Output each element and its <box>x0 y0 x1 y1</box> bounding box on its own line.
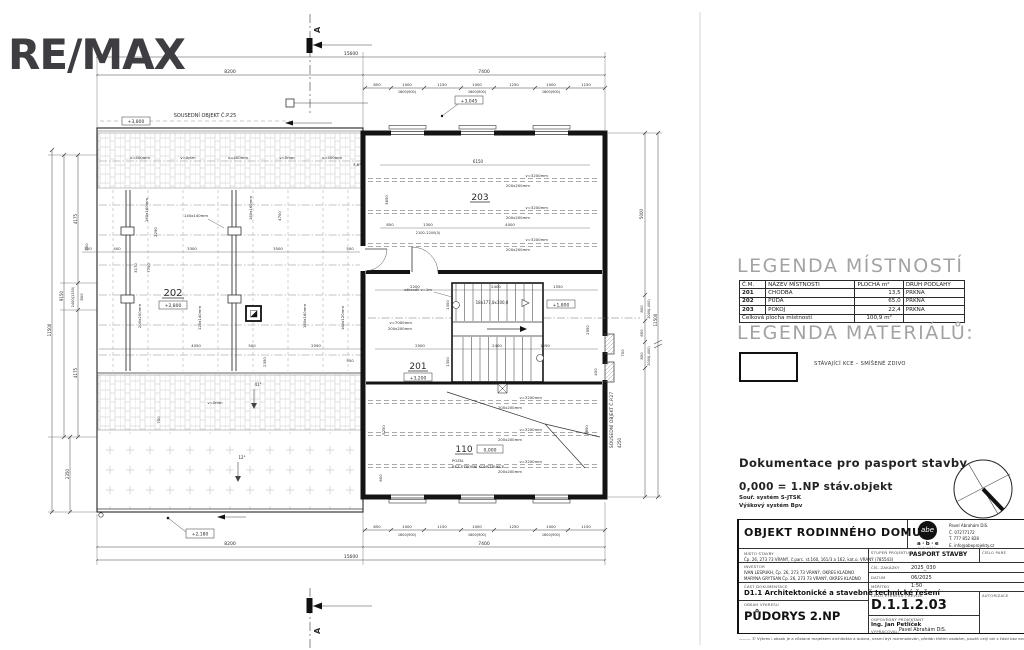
svg-text:2400: 2400 <box>491 284 501 289</box>
svg-text:v=7000mm: v=7000mm <box>390 320 413 325</box>
svg-text:1600(900): 1600(900) <box>542 533 561 537</box>
section-label: A <box>313 26 322 33</box>
misto-stavby-value: Čp. 26, 273 73 VRANÝ, č.parc. st.160, 16… <box>744 557 893 562</box>
neighbor-top-label: SOUSEDNÍ OBJEKT Č.P.25 <box>174 112 237 119</box>
svg-text:200x200mm: 200x200mm <box>498 469 522 474</box>
svg-text:3,8°: 3,8° <box>353 162 361 167</box>
svg-text:1600(900): 1600(900) <box>468 533 487 537</box>
zakazka-value: 2025_030 <box>911 565 936 571</box>
vypracoval-value: Pavel Abrahám DiS. <box>899 628 946 633</box>
svg-text:v=3200mm: v=3200mm <box>526 205 549 210</box>
svg-text:v=3200mm: v=3200mm <box>520 395 543 400</box>
svg-text:160x160mm: 160x160mm <box>302 304 307 328</box>
svg-text:700: 700 <box>620 349 625 357</box>
svg-text:41°: 41° <box>254 382 261 387</box>
odpovedny-value: Ing. Jan Petlíček <box>871 622 921 628</box>
svg-text:600: 600 <box>378 474 383 482</box>
svg-text:1600(900): 1600(900) <box>398 533 417 537</box>
svg-text:v=400mm: v=400mm <box>130 155 150 160</box>
svg-text:+3,800: +3,800 <box>128 119 145 125</box>
svg-text:160x120mm: 160x120mm <box>340 306 345 330</box>
svg-text:1300: 1300 <box>445 300 450 310</box>
svg-text:2350: 2350 <box>262 357 267 367</box>
dim-left-labels: 4175 800 1400(1150) 4175 9150 2350 11500… <box>47 213 89 479</box>
svg-text:200x200mm: 200x200mm <box>506 183 530 188</box>
svg-text:1150: 1150 <box>437 82 447 87</box>
svg-text:850: 850 <box>373 82 381 87</box>
svg-text:2050: 2050 <box>311 343 321 348</box>
svg-text:9150: 9150 <box>59 290 64 301</box>
svg-text:1600(900): 1600(900) <box>398 90 417 94</box>
meritko-label: MĚŘÍTKO <box>871 584 889 589</box>
svg-text:v=3200mm: v=3200mm <box>520 459 543 464</box>
svg-text:+3,045: +3,045 <box>461 99 478 105</box>
material-label: STÁVAJÍCÍ KCE – SMÍŠENÉ ZDIVO <box>814 361 906 367</box>
svg-text:2000(-400): 2000(-400) <box>647 299 651 319</box>
svg-text:18x177,8x300,0: 18x177,8x300,0 <box>476 300 509 305</box>
project-title: OBJEKT RODINNÉHO DOMU <box>744 526 921 539</box>
section-mark-top: A <box>307 14 373 114</box>
svg-text:4700: 4700 <box>277 211 282 221</box>
svg-text:4175: 4175 <box>73 213 78 224</box>
dim-right-labels: 5000 800 2000(-400) 650 800 2000(-400) 7… <box>620 208 658 365</box>
north-arrow <box>951 457 1015 521</box>
cislo-pare-label: ČÍSLO PARÉ <box>982 550 1006 555</box>
investor-line1: IVAN LESPUKH, Čp. 26, 273 73 VRANÝ, OKRE… <box>744 570 854 575</box>
dim-label: 15600 <box>344 51 358 57</box>
legend-rooms-title: LEGENDA MÍSTNOSTÍ <box>737 255 963 277</box>
svg-text:110: 110 <box>455 445 472 455</box>
svg-text:11500: 11500 <box>653 313 658 326</box>
svg-text:1600(900): 1600(900) <box>542 90 561 94</box>
misto-stavby-label: MÍSTO STAVBY <box>744 551 774 556</box>
remax-logo: RE/MAX <box>8 34 185 76</box>
svg-text:2850: 2850 <box>584 425 589 435</box>
svg-text:12°: 12° <box>238 455 245 460</box>
svg-text:1150: 1150 <box>581 524 591 529</box>
svg-text:2950: 2950 <box>585 325 590 335</box>
svg-text:1300: 1300 <box>445 357 450 367</box>
zakazka-label: ČÍS. ZAKÁZKY <box>871 565 900 570</box>
svg-text:1550: 1550 <box>553 284 563 289</box>
abe-logo-sub: projekty <box>918 546 937 549</box>
svg-text:v=400mm: v=400mm <box>228 155 248 160</box>
abe-logo: abe <box>918 521 937 540</box>
doc-info-line3: Souř. systém S-JTSK <box>739 495 801 501</box>
svg-text:1150: 1150 <box>581 82 591 87</box>
svg-text:2290: 2290 <box>153 227 158 237</box>
level-3045: +3,045 <box>441 96 483 117</box>
section-mark-bottom: A <box>307 588 373 648</box>
svg-text:1600(900): 1600(900) <box>468 90 487 94</box>
dim-label: 15600 <box>344 554 358 560</box>
svg-text:1250: 1250 <box>540 343 550 348</box>
svg-text:500: 500 <box>248 343 256 348</box>
svg-text:200x200mm: 200x200mm <box>498 405 522 410</box>
svg-text:5000: 5000 <box>639 208 644 219</box>
svg-text:5250: 5250 <box>381 425 386 435</box>
meritko-value: 1:50 <box>911 583 922 589</box>
neighbor-right-label: SOUSEDNÍ OBJEKT Č.P.27 <box>608 392 615 448</box>
table-header-row: Č.M. NÁZEV MÍSTNOSTI PLOCHA m² DRUH PODL… <box>740 281 965 289</box>
svg-text:v=0mm: v=0mm <box>180 155 196 160</box>
doc-info-line4: Výškový systém Bpv <box>739 503 802 509</box>
autorizace-label: AUTORIZACE <box>982 593 1009 598</box>
svg-text:2100–2200(0): 2100–2200(0) <box>416 231 441 235</box>
svg-text:200x200mm: 200x200mm <box>137 304 142 328</box>
cislo-vykresu-label: ČÍSLO VÝKRESU / REVIZE <box>871 593 923 598</box>
contact-email: E. info@abeprojekty.cz <box>949 543 994 548</box>
stupen-value: PASPORT STAVBY <box>909 551 967 558</box>
svg-text:v=0mm: v=0mm <box>207 400 223 405</box>
doc-info-line1: Dokumentace pro pasport stavby <box>739 456 967 470</box>
svg-text:v=3200mm: v=3200mm <box>526 173 549 178</box>
svg-text:+1,800: +1,800 <box>553 303 570 309</box>
svg-text:7750: 7750 <box>146 263 151 273</box>
svg-text:160x160mm: 160x160mm <box>144 198 149 222</box>
svg-text:650: 650 <box>639 329 644 337</box>
dim-label: 4250 <box>617 437 622 448</box>
dim-bottom-windows: 850 1000 1150 1000 1250 1000 1150 1600(9… <box>373 524 591 537</box>
svg-text:500: 500 <box>84 243 89 251</box>
svg-text:203: 203 <box>471 193 488 203</box>
svg-text:4050: 4050 <box>191 343 201 348</box>
dim-label: 7400 <box>478 69 490 75</box>
svg-text:1000: 1000 <box>402 524 412 529</box>
svg-text:3650: 3650 <box>384 195 389 205</box>
vypracoval-label: VYPRACOVAL: <box>871 629 899 634</box>
floor-plan-drawing: A A 15600 8200 7400 850 1000 1150 1000 1… <box>0 0 735 650</box>
table-row: 203POKOJ 22,4PRKNA <box>740 306 965 314</box>
material-swatch <box>739 352 798 382</box>
svg-text:550: 550 <box>346 358 354 363</box>
svg-text:1150: 1150 <box>437 524 447 529</box>
svg-text:2200: 2200 <box>410 284 420 289</box>
copyright-disclaimer: ——— © Výkres i obsah je a zůstane majetk… <box>739 636 1024 641</box>
contact-name: Pavel Abrahám DiS. <box>949 523 988 528</box>
dim-left-chain <box>48 148 97 514</box>
svg-text:4175: 4175 <box>73 367 78 378</box>
svg-text:201: 201 <box>409 362 426 372</box>
svg-text:1250: 1250 <box>509 524 519 529</box>
svg-text:+3,200: +3,200 <box>410 376 427 382</box>
windows-top <box>389 126 570 138</box>
investor-line2: MARYNA GRYTSAN Čp. 26, 273 73 VRANÝ, OKR… <box>744 576 861 581</box>
svg-text:3500: 3500 <box>273 246 283 251</box>
svg-text:3300: 3300 <box>187 246 197 251</box>
svg-text:v=400mm: v=400mm <box>322 155 342 160</box>
svg-text:1400(1150): 1400(1150) <box>71 286 75 307</box>
dim-label: 8200 <box>224 541 236 547</box>
svg-text:0,000: 0,000 <box>484 448 497 454</box>
legend-materials-title: LEGENDA MATERIÁLŮ: <box>737 322 974 344</box>
svg-text:800: 800 <box>639 305 644 313</box>
svg-text:v=3200mm: v=3200mm <box>526 237 549 242</box>
svg-text:2400: 2400 <box>492 343 502 348</box>
drawing-number: D.1.1.2.03 <box>871 598 947 613</box>
svg-text:1000: 1000 <box>546 524 556 529</box>
investor-label: INVESTOR <box>744 564 765 569</box>
svg-text:120x140mm: 120x140mm <box>197 306 202 330</box>
svg-text:+2,800: +2,800 <box>165 303 182 309</box>
section-label: A <box>313 627 322 634</box>
svg-text:850: 850 <box>373 524 381 529</box>
svg-text:140x140mm: 140x140mm <box>184 213 208 218</box>
dim-label: 8200 <box>224 69 236 75</box>
svg-text:200x200mm: 200x200mm <box>388 326 412 331</box>
table-row: 202PŮDA 65,0PRKNA <box>740 297 965 305</box>
level-2180: +2,180 <box>167 517 214 538</box>
svg-text:200x200mm: 200x200mm <box>506 215 530 220</box>
svg-text:4000: 4000 <box>505 222 515 227</box>
svg-text:POZN.: POZN. <box>452 458 464 463</box>
table-row: 201CHODBA 13,5PRKNA <box>740 289 965 297</box>
svg-text:2500: 2500 <box>415 343 425 348</box>
svg-text:800: 800 <box>639 352 644 360</box>
svg-text:200x200mm: 200x200mm <box>498 437 522 442</box>
svg-text:850: 850 <box>386 222 394 227</box>
svg-text:700: 700 <box>156 416 161 424</box>
svg-text:11500: 11500 <box>47 323 52 336</box>
svg-text:1300: 1300 <box>423 222 433 227</box>
svg-text:1000: 1000 <box>546 82 556 87</box>
contact-ic: Č. 07277172 <box>949 530 975 535</box>
svg-text:400: 400 <box>113 246 121 251</box>
dim-label: 7400 <box>478 541 490 547</box>
title-block: OBJEKT RODINNÉHO DOMU MÍSTO STAVBY Čp. 2… <box>737 519 1024 634</box>
datum-value: 06/2025 <box>911 575 932 581</box>
windows-bottom <box>389 493 570 503</box>
chimney-symbol <box>246 306 261 321</box>
legend-rooms-table: Č.M. NÁZEV MÍSTNOSTI PLOCHA m² DRUH PODL… <box>739 280 965 323</box>
svg-text:500: 500 <box>346 246 354 251</box>
svg-text:450: 450 <box>593 368 598 376</box>
svg-text:200x200mm: 200x200mm <box>506 247 530 252</box>
svg-text:202: 202 <box>163 288 182 299</box>
datum-label: DATUM <box>871 575 886 580</box>
obsah-vykresu-label: OBSAH VÝKRESU <box>744 602 779 607</box>
svg-text:2350: 2350 <box>65 468 70 479</box>
svg-text:v=3200mm: v=3200mm <box>520 427 543 432</box>
svg-text:2000(-400): 2000(-400) <box>647 346 651 366</box>
svg-text:6150: 6150 <box>473 159 484 164</box>
contact-tel: T. 777 852 828 <box>949 536 979 541</box>
svg-text:3170: 3170 <box>133 263 138 273</box>
stupen-label: STUPEŇ PROJEKTU <box>871 550 909 555</box>
svg-text:1250: 1250 <box>509 82 519 87</box>
svg-text:v=0mm: v=0mm <box>279 155 295 160</box>
svg-text:800: 800 <box>79 293 84 301</box>
doc-info-line2: 0,000 = 1.NP stáv.objekt <box>739 481 893 493</box>
drawing-title: PŮDORYS 2.NP <box>744 609 840 623</box>
svg-text:1000: 1000 <box>472 524 482 529</box>
svg-text:+2,180: +2,180 <box>192 532 209 538</box>
svg-text:1000: 1000 <box>402 82 412 87</box>
svg-text:1000: 1000 <box>472 82 482 87</box>
svg-text:160x160mm: 160x160mm <box>248 196 253 220</box>
